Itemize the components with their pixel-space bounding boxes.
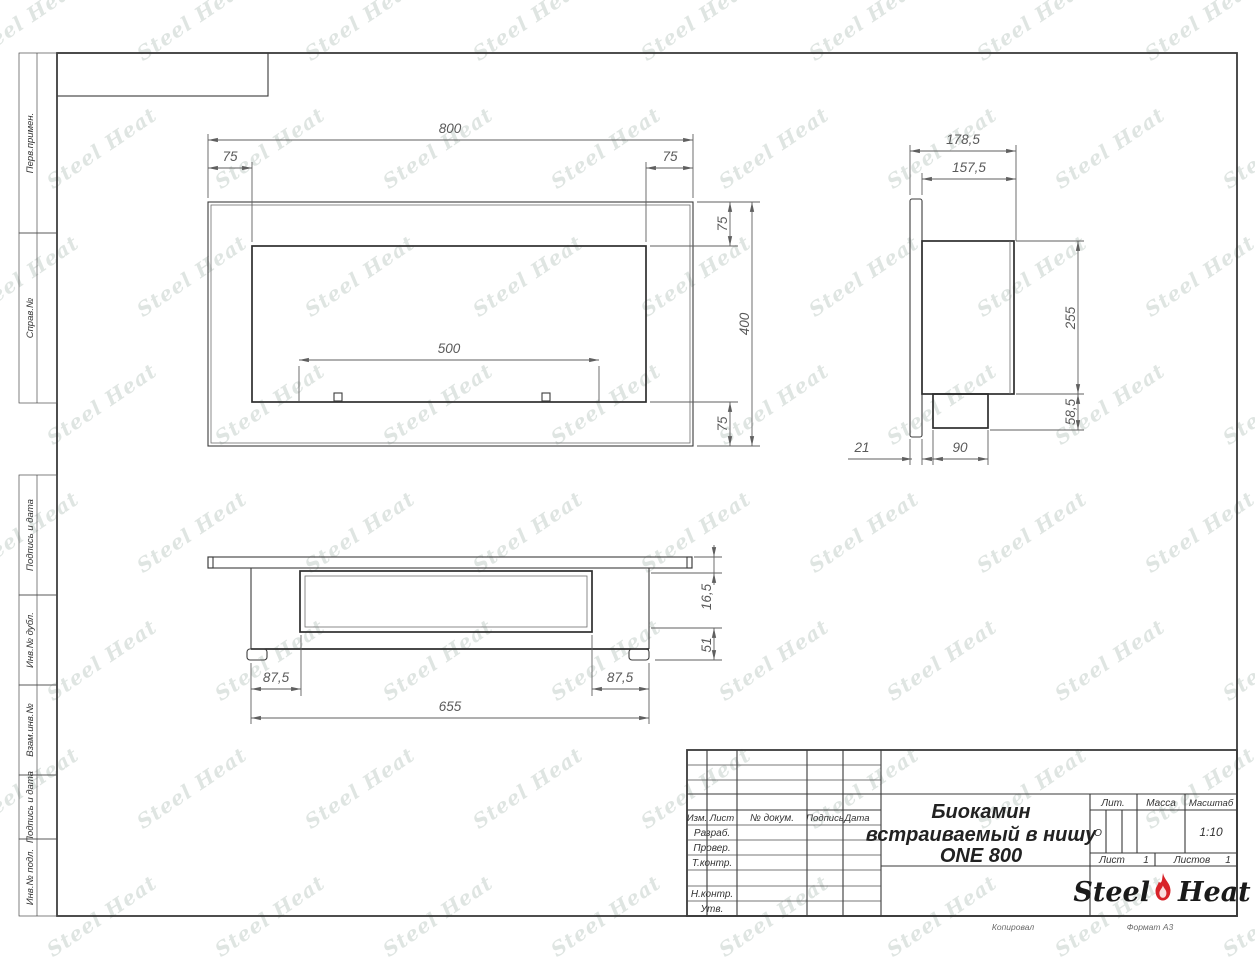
dim-top-inset-left: 87,5 — [263, 670, 290, 685]
front-plate-edge — [208, 557, 692, 568]
row-razrab: Разраб. — [694, 827, 730, 839]
masshtab-label: Масштаб — [1189, 798, 1234, 809]
margin-label-sprav-no: Справ.№ — [25, 298, 36, 339]
col-sign: Подпись — [806, 813, 844, 824]
margin-label-podpis-data-2: Подпись и дата — [25, 771, 36, 843]
burner-tray — [933, 394, 988, 428]
format-label: Формат А3 — [1127, 922, 1174, 932]
dim-top-niche-width: 655 — [439, 699, 462, 714]
burner-tab-left — [334, 393, 342, 401]
row-tkontr: Т.контр. — [692, 858, 732, 869]
list-value: 1 — [1143, 855, 1149, 866]
foot-left — [247, 649, 267, 660]
dim-front-offset-bottom: 75 — [715, 416, 730, 432]
technical-drawing-canvas: Перв.примен. Справ.№ Подпись и дата Инв.… — [0, 0, 1255, 970]
doc-title-line2: встраиваемый в нишу — [866, 824, 1097, 846]
margin-label-vzam-inv: Взам.инв.№ — [25, 703, 36, 756]
burner-tab-right — [542, 393, 550, 401]
lit-label: Лит. — [1100, 798, 1124, 809]
col-doc: № докум. — [750, 813, 794, 824]
copied-label: Копировал — [992, 922, 1034, 932]
side-view: 178,5 157,5 255 58,5 21 90 — [848, 132, 1084, 465]
dim-top-inset-right: 87,5 — [607, 670, 634, 685]
dim-top-glass-depth: 51 — [699, 637, 714, 652]
list-label: Лист — [1098, 855, 1125, 866]
dim-front-offset-right: 75 — [662, 149, 678, 164]
foot-right — [629, 649, 649, 660]
dim-side-depth-body: 157,5 — [952, 160, 986, 175]
masshtab-value: 1:10 — [1199, 825, 1223, 839]
dim-front-offset-top: 75 — [715, 216, 730, 232]
dim-front-offset-left: 75 — [222, 149, 238, 164]
drawing-sheet: Steel HeatSteel HeatSteel HeatSteel Heat… — [0, 0, 1255, 970]
margin-label-inv-podl: Инв.№ подл. — [25, 849, 36, 905]
glass-window-outline — [300, 571, 592, 632]
listov-value: 1 — [1225, 855, 1231, 866]
col-izm: Изм. — [687, 813, 707, 824]
doc-title-line1: Биокамин — [931, 801, 1030, 823]
logo-text-heat: Heat — [1177, 877, 1251, 908]
row-prover: Провер. — [693, 843, 730, 854]
dim-side-wall-thickness: 21 — [853, 440, 869, 455]
col-list: Лист — [709, 813, 735, 824]
steel-heat-logo: Steel Heat — [1073, 873, 1251, 908]
margin-label-podpis-data-1: Подпись и дата — [25, 499, 36, 571]
left-margin-column: Перв.примен. Справ.№ Подпись и дата Инв.… — [19, 53, 57, 916]
lit-value: О — [1094, 828, 1102, 839]
margin-label-perv-primen: Перв.примен. — [25, 113, 36, 174]
dim-side-body-height: 255 — [1063, 306, 1078, 330]
title-block: Изм. Лист № докум. Подпись Дата Разраб. … — [687, 750, 1251, 916]
col-date: Дата — [843, 813, 869, 824]
massa-label: Масса — [1146, 798, 1176, 809]
margin-label-inv-dubl: Инв.№ дубл. — [25, 612, 36, 668]
side-body — [922, 241, 1014, 394]
dim-side-tray-width: 90 — [952, 440, 968, 455]
row-nkontr: Н.контр. — [691, 889, 733, 900]
flame-icon — [1156, 873, 1171, 901]
dim-top-front-gap: 16,5 — [699, 583, 714, 610]
logo-text-steel: Steel — [1073, 877, 1150, 908]
top-view: 16,5 51 87,5 87,5 655 — [208, 545, 722, 724]
front-view: 800 75 75 75 400 75 500 — [208, 121, 760, 446]
dim-front-width: 800 — [439, 121, 462, 136]
dim-side-tray-height: 58,5 — [1063, 398, 1078, 425]
doc-title-line3: ONE 800 — [940, 845, 1022, 867]
wall-plate — [910, 199, 922, 437]
listov-label: Листов — [1173, 855, 1210, 866]
dim-side-depth-total: 178,5 — [946, 132, 980, 147]
top-left-stamp-box — [57, 53, 268, 96]
row-utv: Утв. — [700, 904, 724, 915]
dim-front-burner: 500 — [438, 341, 461, 356]
dim-front-height: 400 — [737, 312, 752, 335]
sheet-frame — [57, 53, 1237, 916]
